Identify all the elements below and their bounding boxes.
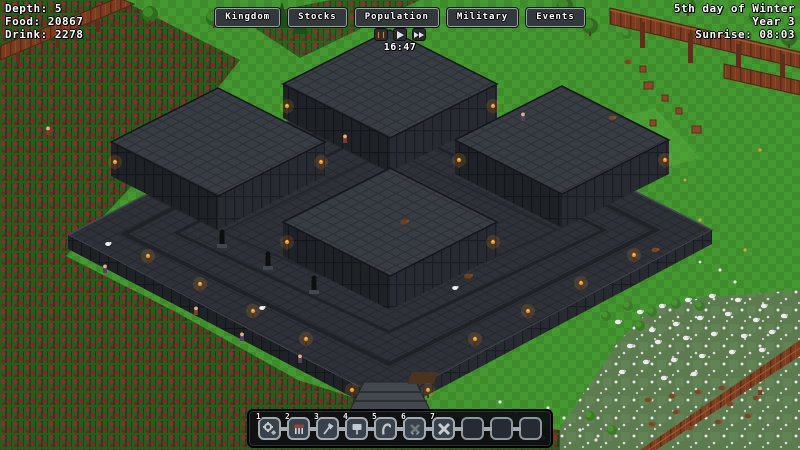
hotbar-slot-5[interactable]: 5 [374, 417, 397, 440]
hotbar-slot-4[interactable]: 4 [345, 417, 368, 440]
sign-post-icon [349, 421, 365, 437]
play-button[interactable] [393, 28, 407, 41]
slot-number: 6 [401, 412, 406, 421]
slot-number: 2 [285, 412, 290, 421]
crossed-swords-dark-icon [407, 421, 423, 437]
slot-number: 5 [372, 412, 377, 421]
fast-forward-icon [419, 32, 424, 38]
hotbar-slot-9[interactable] [490, 417, 513, 440]
hotbar-slot-6[interactable]: 6 [403, 417, 426, 440]
slot-number: 3 [314, 412, 319, 421]
game-window: Depth: 5 Food: 20867 Drink: 2278 5th day… [0, 0, 800, 450]
hotbar-slot-1[interactable]: 1 [258, 417, 281, 440]
pause-button[interactable] [374, 28, 388, 41]
hotbar-slot-7[interactable]: 7 [432, 417, 455, 440]
crossed-swords-icon [436, 421, 452, 437]
pause-icon [377, 31, 380, 39]
slot-number: 1 [256, 412, 261, 421]
hotbar-slot-2[interactable]: 2 [287, 417, 310, 440]
slot-number: 4 [343, 412, 348, 421]
population-button[interactable]: Population [355, 8, 439, 27]
kingdom-button[interactable]: Kingdom [215, 8, 280, 27]
slot-number: 7 [430, 412, 435, 421]
hotbar-slot-10[interactable] [519, 417, 542, 440]
hotbar-slot-3[interactable]: 3 [316, 417, 339, 440]
farm-icon [291, 421, 307, 437]
events-button[interactable]: Events [526, 8, 585, 27]
hook-icon [378, 421, 394, 437]
play-icon [397, 31, 404, 39]
gear-gem-icon [262, 421, 278, 437]
drink-stat: Drink: 2278 [5, 28, 83, 41]
fast-forward-button[interactable] [412, 28, 426, 41]
military-button[interactable]: Military [447, 8, 518, 27]
stocks-button[interactable]: Stocks [288, 8, 347, 27]
sunrise-label: Sunrise: 08:03 [674, 28, 795, 41]
hotbar: 1 2 3 [247, 409, 553, 448]
top-menu: Kingdom Stocks Population Military Event… [0, 8, 800, 27]
game-viewport[interactable] [0, 0, 800, 450]
pause-icon [382, 31, 385, 39]
hotbar-slot-8[interactable] [461, 417, 484, 440]
axe-icon [320, 421, 336, 437]
